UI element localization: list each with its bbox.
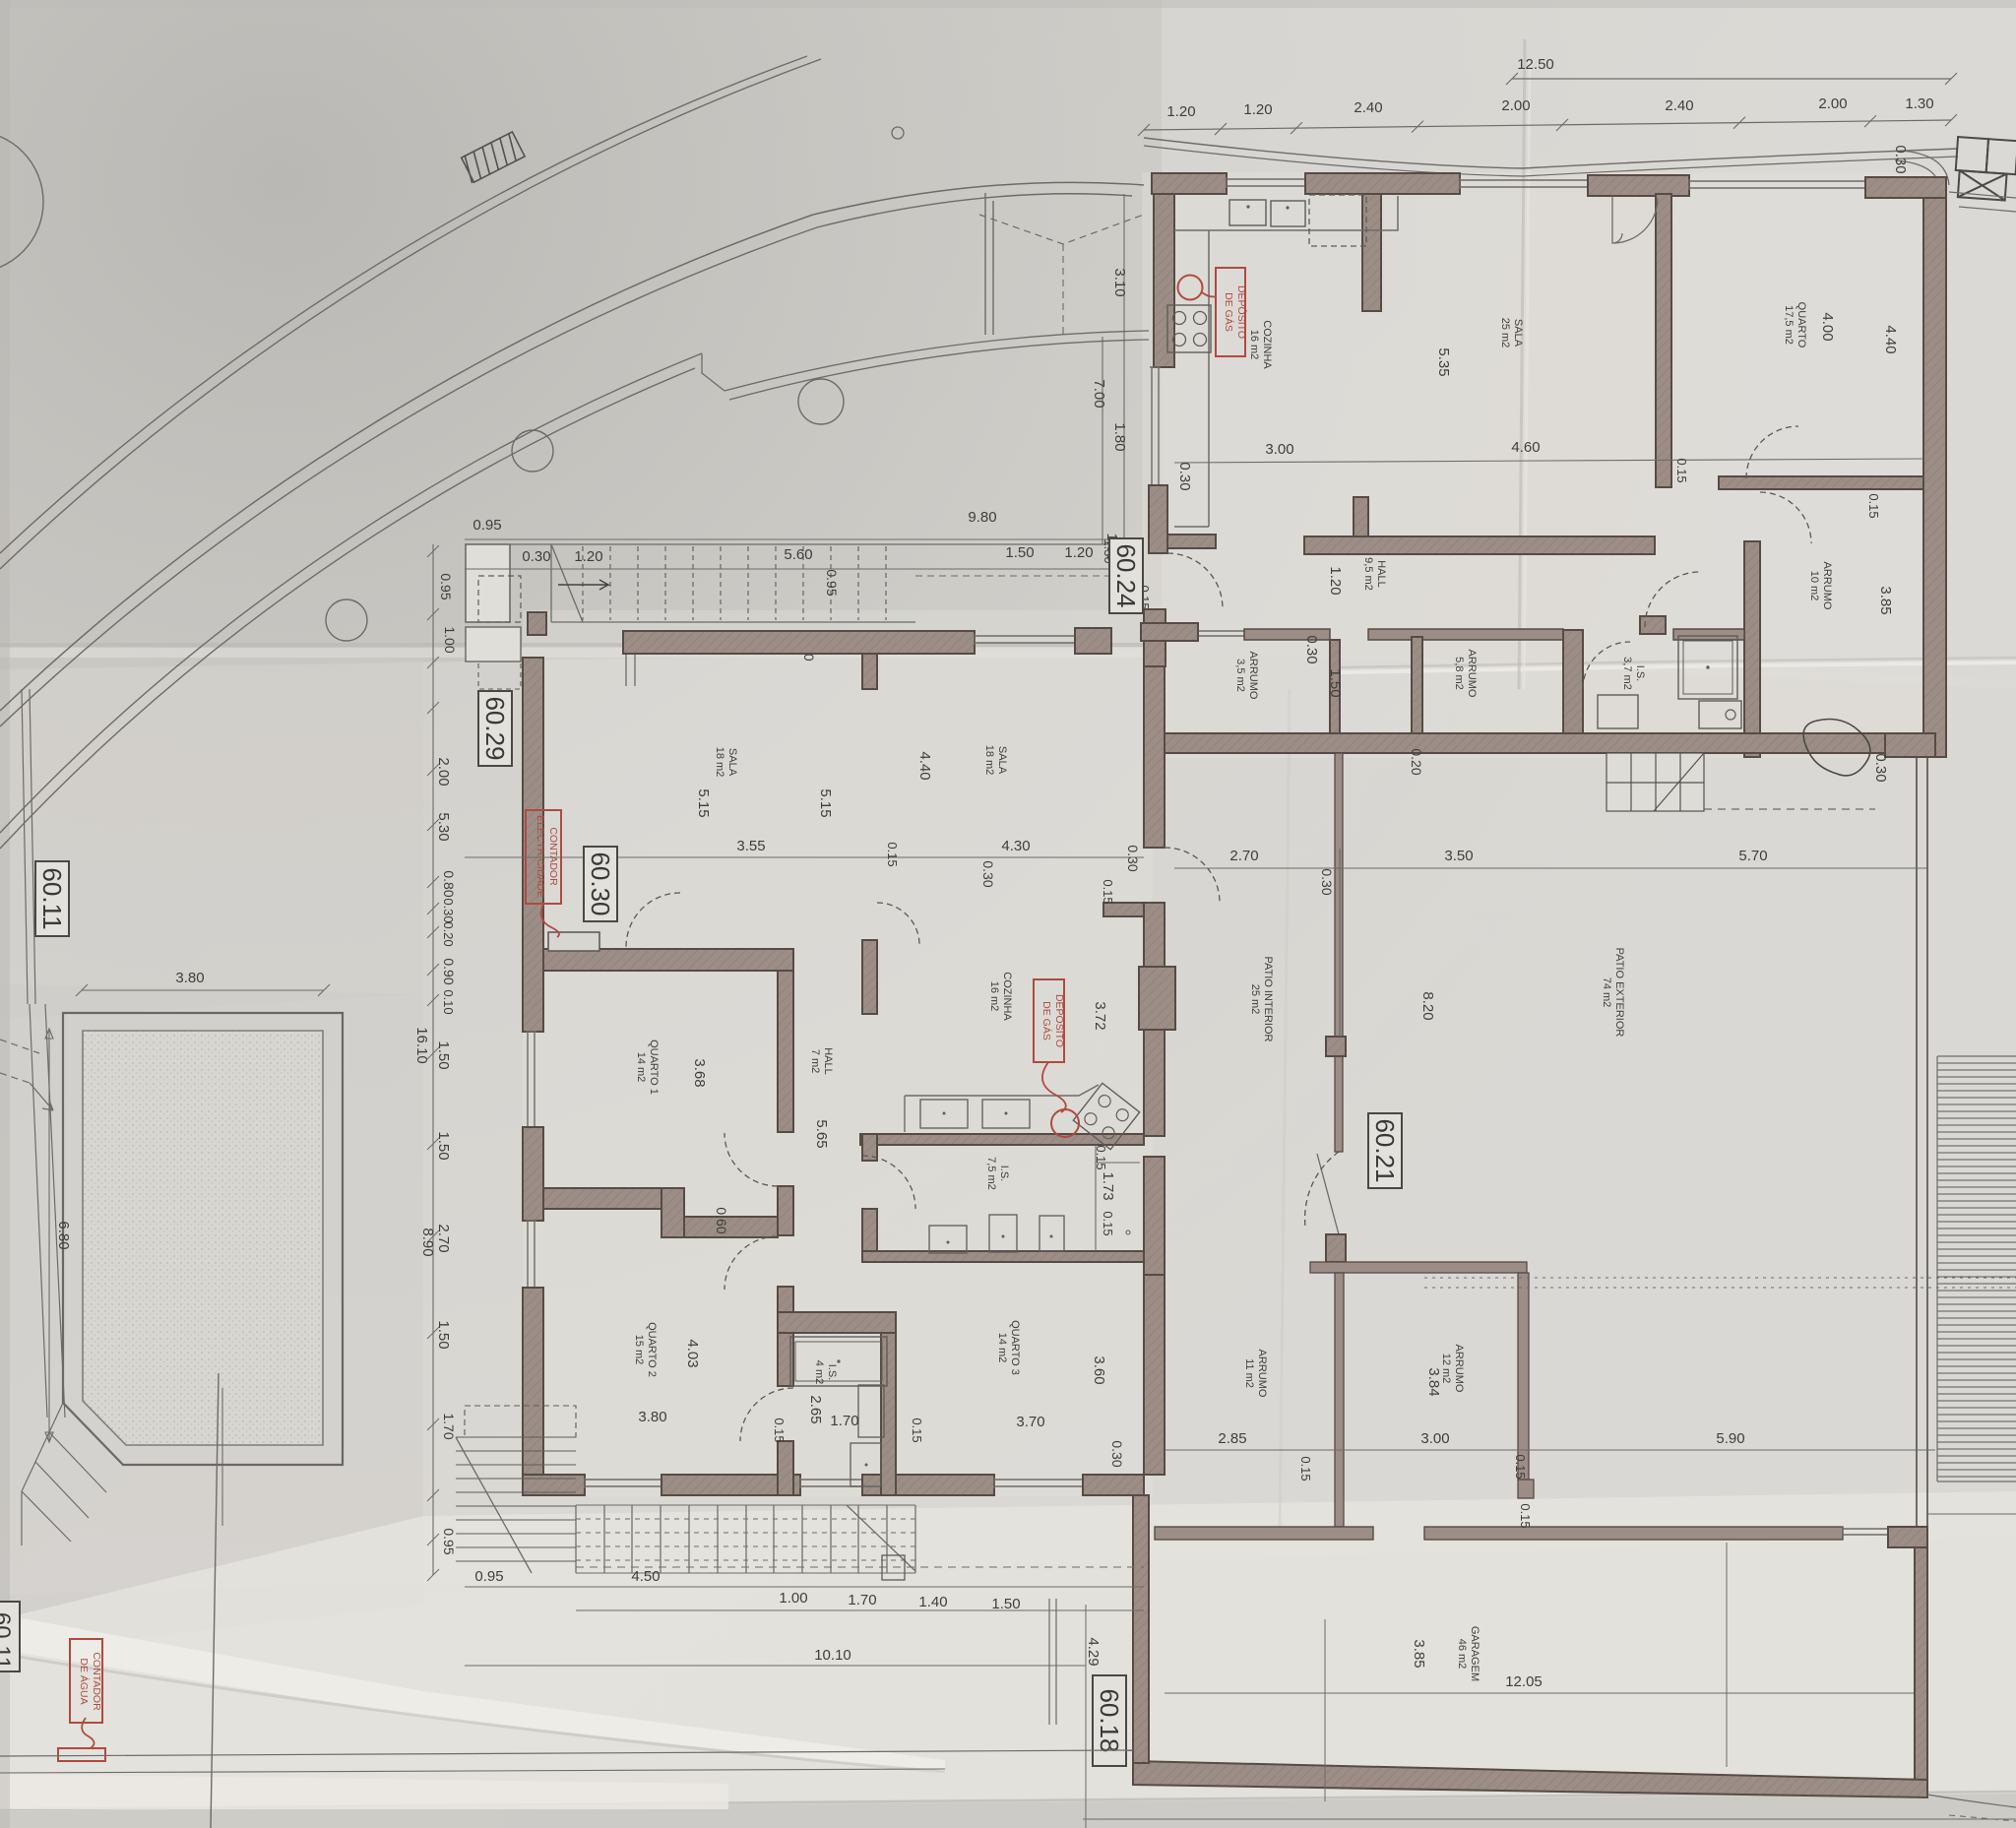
svg-text:0.30: 0.30 [1303,635,1320,663]
svg-text:3.85: 3.85 [1411,1639,1427,1668]
svg-text:1.70: 1.70 [441,1413,457,1439]
svg-text:3.60: 3.60 [1091,1355,1107,1384]
svg-text:5.15: 5.15 [695,788,712,817]
svg-text:4.60: 4.60 [1511,439,1540,456]
svg-text:0.90: 0.90 [441,958,457,984]
svg-text:60.30: 60.30 [586,851,615,915]
svg-text:0.95: 0.95 [441,1528,457,1554]
svg-text:SALA18 m2: SALA18 m2 [983,745,1008,776]
svg-text:QUARTO17,5 m2: QUARTO17,5 m2 [1783,302,1807,348]
svg-text:0.95: 0.95 [472,517,501,534]
svg-text:60.24: 60.24 [1111,543,1141,607]
svg-text:DE ÁGUA: DE ÁGUA [78,1658,91,1704]
svg-text:2.00: 2.00 [1501,97,1530,114]
svg-text:0.20: 0.20 [1409,748,1424,775]
svg-text:0.30: 0.30 [522,548,550,565]
svg-text:1.00: 1.00 [779,1590,807,1607]
svg-text:12.05: 12.05 [1505,1673,1543,1690]
svg-text:60.21: 60.21 [1370,1118,1400,1182]
svg-text:2.40: 2.40 [1665,97,1693,114]
svg-text:2.70: 2.70 [435,1224,452,1252]
svg-text:0.30: 0.30 [1319,868,1335,895]
svg-text:CONTADOR: CONTADOR [91,1652,102,1711]
svg-text:1.70: 1.70 [830,1413,858,1429]
svg-text:12.50: 12.50 [1517,56,1554,73]
svg-text:3.84: 3.84 [1425,1367,1442,1396]
svg-text:6.80: 6.80 [55,1221,72,1249]
svg-text:1.50: 1.50 [1327,668,1344,697]
svg-text:8.20: 8.20 [1419,991,1436,1020]
svg-text:0.80: 0.80 [441,870,457,897]
svg-text:0.15: 0.15 [1674,458,1689,482]
svg-text:4.29: 4.29 [1085,1637,1102,1666]
svg-text:0.30: 0.30 [1109,1440,1125,1467]
svg-text:3.00: 3.00 [1265,441,1293,458]
svg-text:3.70: 3.70 [1016,1414,1044,1430]
svg-text:60.18: 60.18 [1095,1688,1124,1752]
svg-text:HALL7 m2: HALL7 m2 [809,1047,834,1075]
svg-text:0.15: 0.15 [1101,879,1115,904]
svg-text:3.00: 3.00 [1420,1430,1449,1447]
svg-text:1.20: 1.20 [1327,566,1344,595]
svg-text:3.72: 3.72 [1092,1001,1108,1030]
svg-text:1.20: 1.20 [1243,101,1272,118]
svg-text:16.10: 16.10 [413,1027,430,1064]
svg-text:1.70: 1.70 [848,1592,876,1608]
svg-text:4.40: 4.40 [916,751,933,780]
svg-text:2.85: 2.85 [1218,1430,1246,1447]
svg-text:0.15: 0.15 [1513,1454,1528,1479]
svg-text:0.15: 0.15 [1518,1503,1533,1528]
svg-text:DE GÁS: DE GÁS [1223,292,1235,332]
svg-text:HALL9,5 m2: HALL9,5 m2 [1362,557,1387,591]
svg-text:1.50: 1.50 [435,1320,452,1349]
svg-text:0.15: 0.15 [1298,1456,1313,1481]
svg-text:3.80: 3.80 [638,1409,666,1425]
svg-text:0.30: 0.30 [441,898,456,922]
svg-text:0.15: 0.15 [1866,493,1881,518]
svg-text:2.00: 2.00 [1818,95,1847,112]
svg-text:4.00: 4.00 [1819,312,1836,341]
svg-text:1.50: 1.50 [1005,544,1034,561]
svg-text:5.30: 5.30 [435,812,452,841]
svg-text:DE GÁS: DE GÁS [1040,1001,1053,1040]
svg-text:0.15: 0.15 [772,1418,787,1442]
svg-text:0.15: 0.15 [1101,1211,1115,1235]
svg-text:0.30: 0.30 [1125,845,1141,871]
svg-text:0.15: 0.15 [1094,1145,1108,1169]
svg-text:5.70: 5.70 [1738,848,1767,864]
svg-text:0.20: 0.20 [441,921,456,946]
svg-text:1.73: 1.73 [1100,1171,1116,1200]
svg-text:SALA18 m2: SALA18 m2 [714,747,738,778]
svg-text:3.80: 3.80 [175,970,204,986]
svg-text:4.40: 4.40 [1882,325,1899,353]
svg-text:10.10: 10.10 [814,1647,851,1664]
svg-text:7.00: 7.00 [1091,379,1107,408]
svg-text:0.95: 0.95 [438,573,454,599]
svg-text:0.30: 0.30 [980,860,996,887]
svg-text:0.15: 0.15 [885,842,900,866]
svg-text:1.50: 1.50 [435,1131,452,1160]
svg-text:0.95: 0.95 [824,569,840,596]
svg-text:3.55: 3.55 [736,838,765,854]
svg-text:1.20: 1.20 [1166,103,1195,120]
svg-text:0.30: 0.30 [1892,145,1909,173]
svg-text:1.20: 1.20 [1064,544,1093,561]
svg-text:0.95: 0.95 [474,1568,503,1585]
svg-text:60.29: 60.29 [480,696,510,760]
svg-text:9.80: 9.80 [968,509,996,526]
svg-text:4.03: 4.03 [684,1339,701,1367]
svg-text:4.50: 4.50 [631,1568,660,1585]
svg-text:ELECTRICIDADE: ELECTRICIDADE [535,815,546,898]
svg-text:1.20: 1.20 [574,548,602,565]
svg-text:2.00: 2.00 [435,757,452,786]
svg-text:5.90: 5.90 [1716,1430,1744,1447]
svg-text:5.15: 5.15 [817,788,834,817]
svg-text:3.10: 3.10 [1111,268,1128,296]
svg-text:1.30: 1.30 [1905,95,1933,112]
svg-text:0.30: 0.30 [1176,462,1193,490]
svg-text:3.85: 3.85 [1877,586,1894,614]
svg-text:1.80: 1.80 [1111,422,1128,451]
svg-text:DEPÓSITO: DEPÓSITO [1235,285,1248,339]
svg-text:2.40: 2.40 [1354,99,1382,116]
svg-text:5.65: 5.65 [813,1119,830,1148]
svg-text:2.65: 2.65 [807,1395,824,1423]
svg-text:1.50: 1.50 [435,1040,452,1069]
svg-text:1.00: 1.00 [442,626,458,653]
svg-text:1.50: 1.50 [991,1596,1020,1612]
svg-text:5.35: 5.35 [1435,347,1452,376]
svg-text:0.60: 0.60 [714,1207,729,1233]
svg-text:0.15: 0.15 [910,1418,924,1442]
svg-text:SALA25 m2: SALA25 m2 [1499,318,1524,348]
svg-text:1.40: 1.40 [918,1594,947,1610]
svg-text:4.30: 4.30 [1001,838,1030,854]
svg-text:0.30: 0.30 [1872,753,1889,782]
svg-text:CONTADOR: CONTADOR [547,827,559,886]
svg-text:60.11: 60.11 [0,1612,15,1670]
svg-text:3.68: 3.68 [691,1058,708,1087]
svg-text:2.70: 2.70 [1229,848,1258,864]
svg-text:5.60: 5.60 [784,546,812,563]
svg-text:8.90: 8.90 [419,1228,436,1256]
svg-text:3.50: 3.50 [1444,848,1473,864]
svg-text:60.11: 60.11 [37,867,67,929]
svg-text:0.10: 0.10 [441,989,456,1014]
svg-text:DEPÓSITO: DEPÓSITO [1053,994,1066,1047]
